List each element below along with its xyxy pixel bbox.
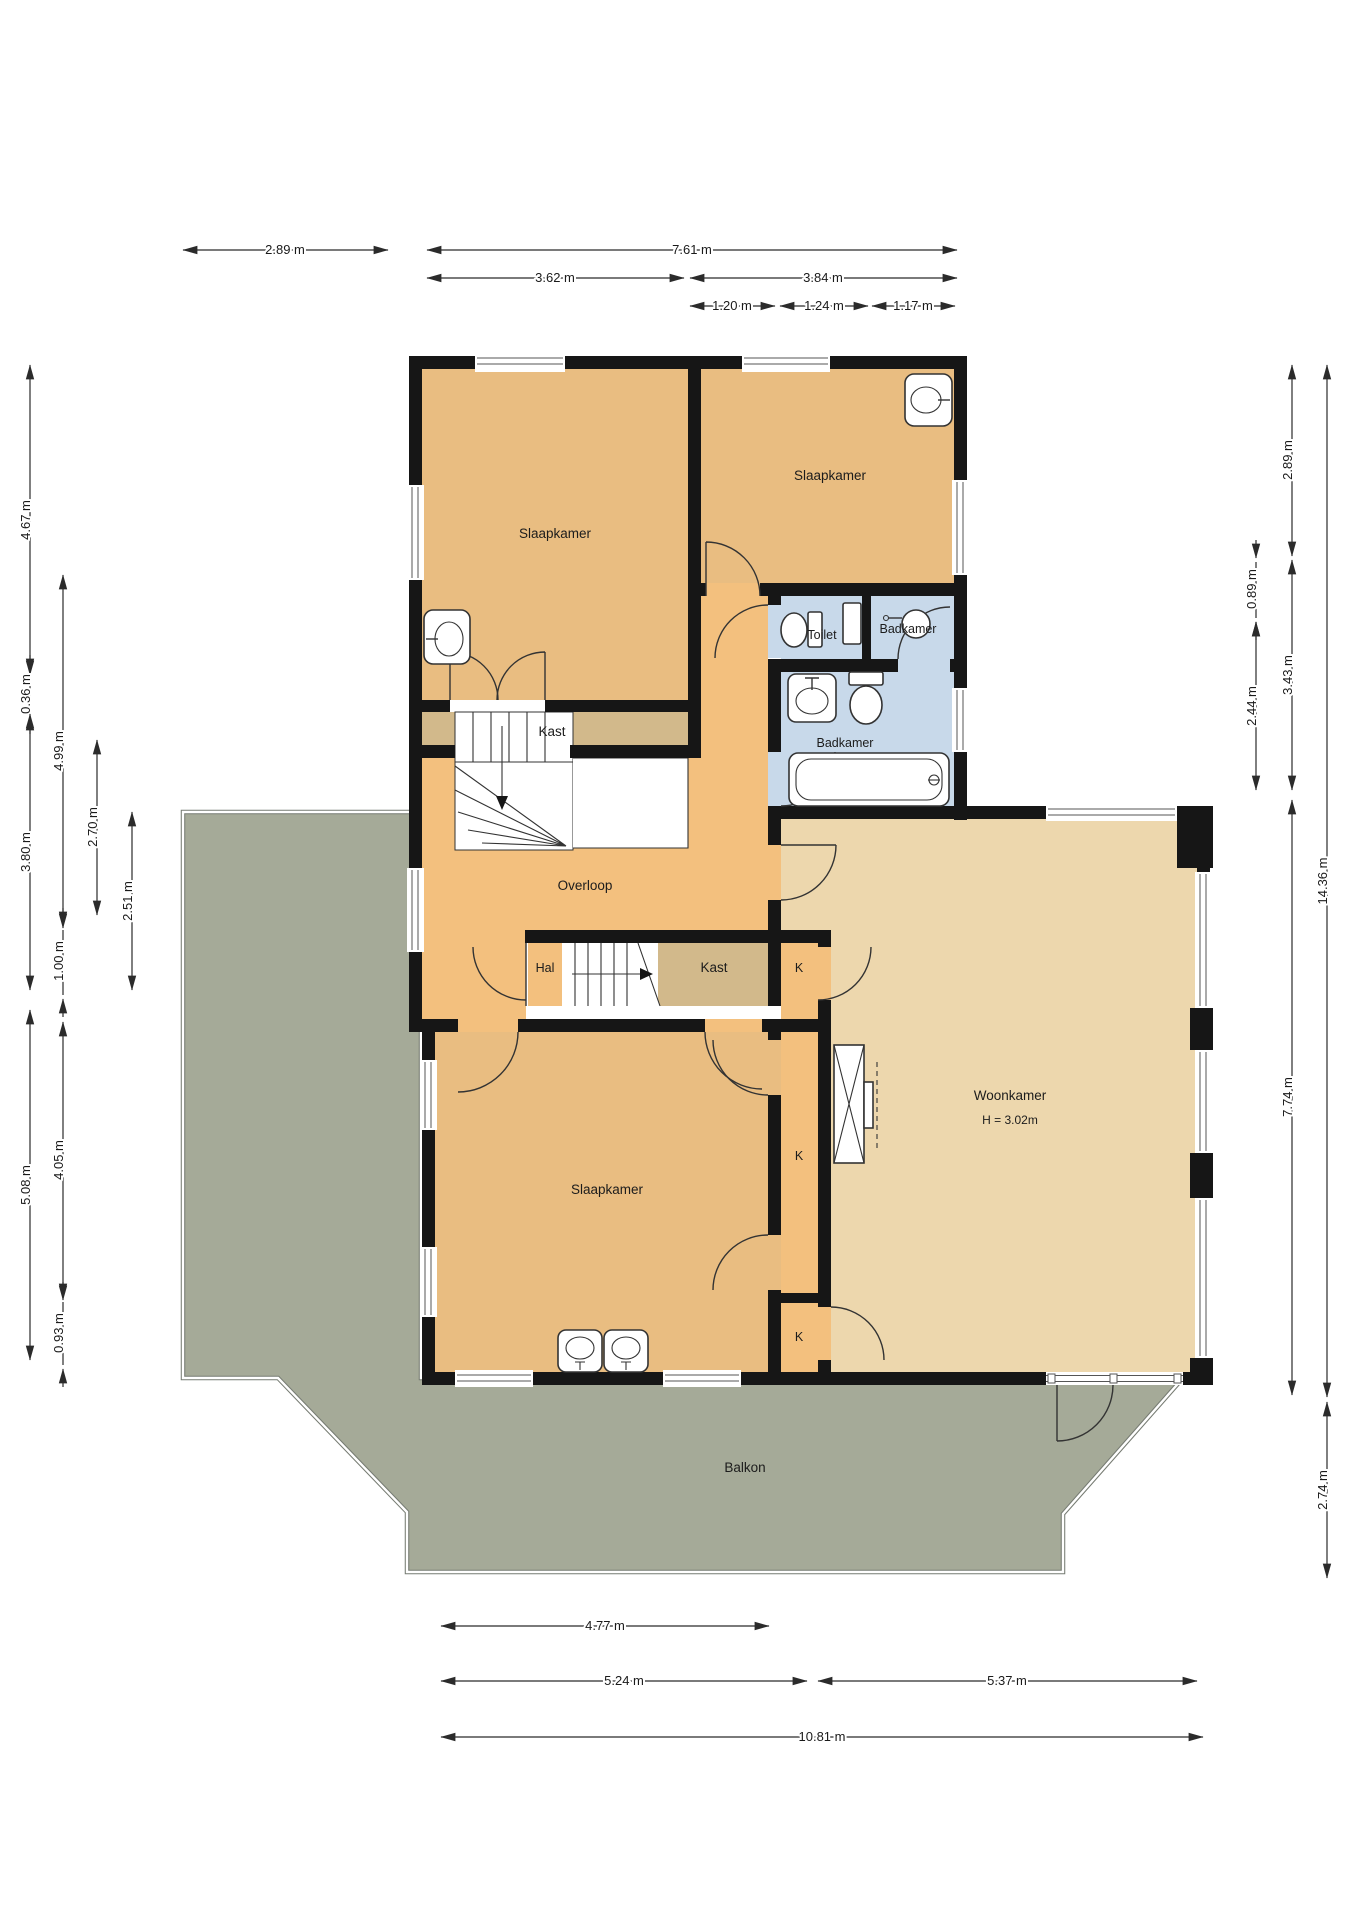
dim-label: 2.70 m [85,807,100,847]
label-bathroom-main: Badkamer [817,736,874,750]
window-icon [420,1060,437,1130]
dim-label: 3.80 m [18,832,33,872]
dim-label: 1.00 m [51,941,66,981]
label-k1: K [795,961,804,975]
window-icon [407,485,424,580]
sink-icon [424,610,470,664]
label-balcony: Balkon [724,1460,765,1475]
label-bedroom-top-left: Slaapkamer [519,526,592,541]
dim-label: 3.43 m [1280,655,1295,695]
label-bedroom-bottom: Slaapkamer [571,1182,644,1197]
dim-label: 2.44 m [1244,686,1259,726]
door-gap-fill-4 [768,752,781,806]
dim-label: 1.24 m [804,298,844,313]
window-icon [952,688,969,752]
dim-label: 2.89 m [1280,440,1295,480]
dim-label: 4.99 m [51,731,66,771]
window-icon [1195,872,1212,1008]
dim-label: 5.24 m [604,1673,644,1688]
label-living-room-height: H = 3.02m [982,1113,1038,1127]
bathtub-icon [789,753,949,806]
sink-icon [905,374,952,426]
floorplan-page: Slaapkamer Slaapkamer Toilet Badkamer Ba… [0,0,1358,1920]
door-gap-fill-6 [768,845,781,900]
window-icon [1195,1198,1212,1358]
window-icon [742,352,830,372]
stairwell-void [573,758,688,848]
dim-label: 3.84 m [803,270,843,285]
dim-label: 2.74 m [1315,1470,1330,1510]
dim-label: 1.17 m [893,298,933,313]
dimensions-top: 2.89 m 7.61 m 3.62 m 3.84 m 1.20 m 1.24 … [183,242,957,313]
window-icon [407,868,424,952]
dim-label: 0.93 m [51,1313,66,1353]
dimensions-bottom: 4.77 m 5.24 m 5.37 m 10.81 m [441,1618,1203,1744]
label-toilet: Toilet [807,628,837,642]
label-hall: Hal [536,961,555,975]
window-icon [1195,1050,1212,1153]
landing-extension-floor [422,930,526,1019]
door-gap-fill-1 [458,1019,518,1032]
sink-icon [788,674,836,722]
dim-label: 0.89 m [1244,569,1259,609]
dimensions-right: 0.89 m 2.44 m 2.89 m 3.43 m 7.74 m 14.36… [1244,365,1330,1578]
label-closet-top: Kast [538,724,565,739]
dim-label: 4.67 m [18,500,33,540]
toilet-icon [849,672,883,724]
window-icon [663,1370,741,1387]
room-bedroom-bottom-floor [435,1032,781,1372]
window-icon [455,1370,533,1387]
door-gap-fill-3 [768,605,781,658]
dim-label: 0.36 m [18,674,33,714]
label-closet-mid: Kast [700,960,727,975]
window-icon [1046,804,1177,821]
dim-label: 10.81 m [799,1729,846,1744]
label-landing: Overloop [558,878,613,893]
sink-icon [604,1330,648,1372]
dim-label: 14.36 m [1315,858,1330,905]
floor-plan: Slaapkamer Slaapkamer Toilet Badkamer Ba… [0,0,1358,1920]
dim-label: 2.89 m [265,242,305,257]
dim-label: 4.05 m [51,1140,66,1180]
label-bedroom-top-right: Slaapkamer [794,468,867,483]
door-gap-fill-2 [705,1019,762,1032]
label-k3: K [795,1330,804,1344]
dim-label: 3.62 m [535,270,575,285]
cistern-icon [843,603,861,644]
dim-label: 7.61 m [672,242,712,257]
dim-label: 2.51 m [120,881,135,921]
dimensions-left: 4.67 m 0.36 m 3.80 m 5.08 m 4.99 m 1.00 … [18,365,135,1387]
dim-label: 4.77 m [585,1618,625,1633]
label-k2: K [795,1149,804,1163]
window-icon [420,1247,437,1317]
dim-label: 5.08 m [18,1165,33,1205]
glazed-door-icon [1046,1372,1183,1385]
door-gap-fill-5 [898,659,950,672]
dim-label: 5.37 m [987,1673,1027,1688]
dim-label: 1.20 m [712,298,752,313]
window-icon [952,480,969,575]
label-bathroom-small: Badkamer [880,622,937,636]
room-floors [422,369,1197,1372]
label-living-room: Woonkamer [974,1088,1047,1103]
sink-icon [558,1330,602,1372]
window-icon [475,352,565,372]
dim-label: 7.74 m [1280,1077,1295,1117]
